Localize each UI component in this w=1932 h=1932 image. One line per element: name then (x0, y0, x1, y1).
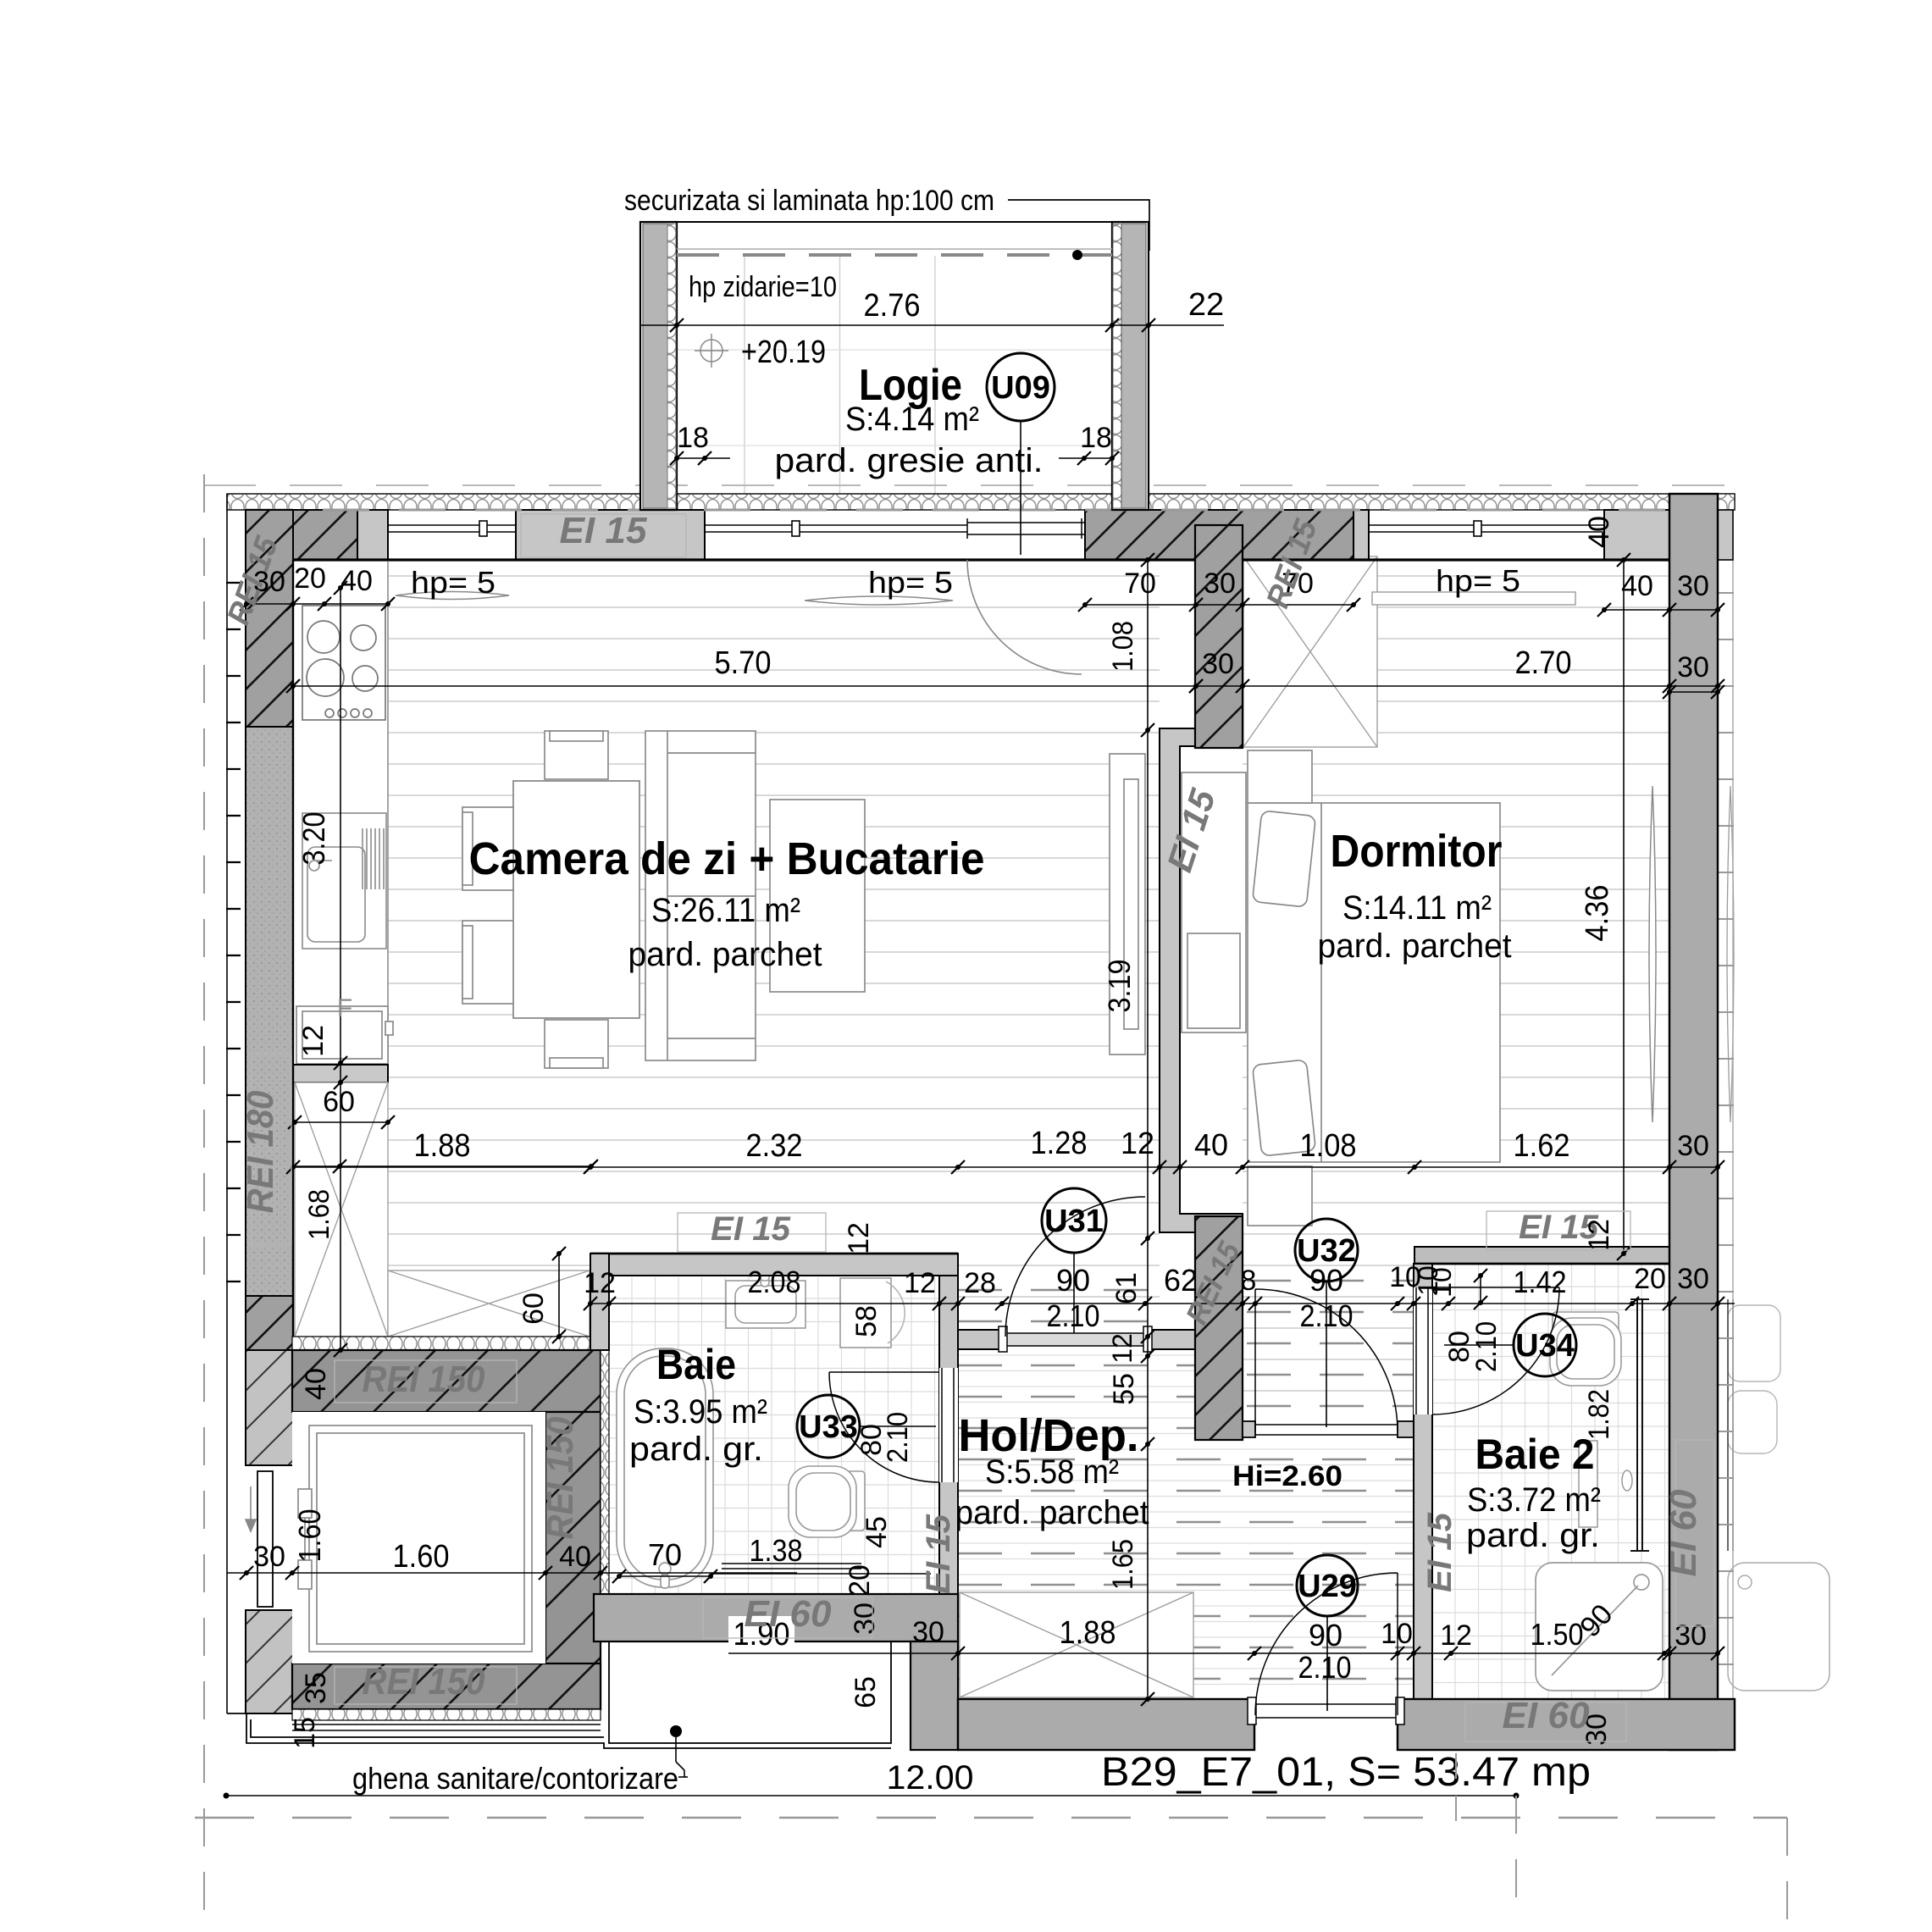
svg-text:12: 12 (843, 1222, 875, 1254)
svg-text:70: 70 (648, 1537, 682, 1572)
svg-text:28: 28 (964, 1267, 996, 1299)
svg-text:securizata si laminata hp:100: securizata si laminata hp:100 cm (624, 185, 994, 217)
svg-text:60: 60 (323, 1086, 355, 1118)
svg-text:12: 12 (1107, 1333, 1138, 1364)
svg-text:hp= 5: hp= 5 (1436, 563, 1520, 598)
svg-text:1.60: 1.60 (292, 1509, 327, 1563)
svg-text:REI 150: REI 150 (363, 1661, 485, 1702)
svg-text:30: 30 (1202, 648, 1234, 680)
svg-text:35: 35 (300, 1672, 332, 1704)
svg-text:pard. parchet: pard. parchet (955, 1494, 1149, 1531)
svg-text:pard. gr.: pard. gr. (1466, 1517, 1600, 1554)
svg-text:12: 12 (584, 1267, 616, 1299)
svg-text:B29_E7_01, S= 53.47 mp: B29_E7_01, S= 53.47 mp (1101, 1750, 1591, 1795)
svg-text:40: 40 (1621, 570, 1653, 602)
svg-text:30: 30 (912, 1616, 944, 1648)
svg-text:EI 60: EI 60 (1663, 1489, 1704, 1577)
svg-text:pard. parchet: pard. parchet (628, 936, 822, 973)
svg-text:10: 10 (1381, 1618, 1413, 1650)
svg-text:U34: U34 (1515, 1328, 1575, 1364)
svg-text:58: 58 (850, 1305, 883, 1337)
svg-text:1.88: 1.88 (414, 1128, 471, 1164)
svg-text:S:26.11 m²: S:26.11 m² (651, 892, 800, 929)
svg-text:90: 90 (1309, 1618, 1342, 1652)
svg-text:60: 60 (518, 1293, 550, 1325)
svg-text:90: 90 (1056, 1263, 1090, 1298)
svg-text:20: 20 (844, 1564, 876, 1597)
svg-text:2.32: 2.32 (746, 1128, 803, 1164)
svg-text:ghena sanitare/contorizare: ghena sanitare/contorizare (352, 1761, 678, 1796)
svg-text:REI 180: REI 180 (240, 1090, 281, 1213)
svg-text:U32: U32 (1297, 1233, 1356, 1269)
svg-text:10: 10 (1426, 1267, 1457, 1298)
svg-text:2.08: 2.08 (748, 1265, 801, 1299)
svg-text:55: 55 (1108, 1373, 1140, 1405)
svg-text:5.70: 5.70 (715, 645, 772, 681)
svg-text:30: 30 (1677, 1130, 1709, 1162)
svg-text:12: 12 (904, 1267, 936, 1299)
svg-text:2.10: 2.10 (1298, 1650, 1352, 1685)
svg-text:1.88: 1.88 (1060, 1615, 1116, 1651)
svg-text:4.36: 4.36 (1580, 885, 1615, 942)
svg-text:30: 30 (1677, 1263, 1709, 1295)
svg-text:U33: U33 (799, 1409, 858, 1445)
svg-text:S:5.58 m²: S:5.58 m² (985, 1453, 1119, 1491)
svg-text:40: 40 (1194, 1127, 1228, 1162)
svg-text:40: 40 (340, 565, 373, 597)
svg-text:65: 65 (850, 1676, 882, 1708)
svg-text:S:3.95 m²: S:3.95 m² (634, 1393, 767, 1431)
svg-text:8: 8 (1241, 1265, 1257, 1297)
svg-text:EI 15: EI 15 (711, 1210, 791, 1248)
svg-text:1.42: 1.42 (1514, 1265, 1567, 1299)
svg-text:S:3.72 m²: S:3.72 m² (1467, 1481, 1601, 1519)
svg-text:40: 40 (1583, 516, 1615, 548)
svg-text:15: 15 (289, 1717, 321, 1749)
svg-text:1.65: 1.65 (1107, 1539, 1139, 1590)
svg-text:EI 15: EI 15 (560, 510, 648, 551)
svg-text:3.19: 3.19 (1102, 960, 1137, 1013)
svg-text:2.70: 2.70 (1515, 645, 1572, 681)
svg-text:1.08: 1.08 (1107, 621, 1139, 672)
svg-text:30: 30 (1675, 1619, 1707, 1652)
svg-text:pard. parchet: pard. parchet (1318, 927, 1512, 965)
svg-text:REI 150: REI 150 (363, 1359, 485, 1400)
svg-text:Baie: Baie (656, 1341, 736, 1388)
svg-text:12.00: 12.00 (887, 1759, 974, 1796)
svg-text:pard. gr.: pard. gr. (629, 1431, 763, 1468)
svg-text:3.20: 3.20 (296, 812, 331, 866)
svg-text:F: F (337, 994, 352, 1022)
svg-text:70: 70 (1124, 567, 1156, 600)
svg-text:Camera de zi + Bucatarie: Camera de zi + Bucatarie (469, 833, 985, 884)
svg-text:20: 20 (1634, 1263, 1666, 1295)
svg-text:2.10: 2.10 (1470, 1321, 1503, 1372)
svg-text:S:14.11 m²: S:14.11 m² (1342, 889, 1492, 927)
svg-text:EI 15: EI 15 (1421, 1512, 1459, 1592)
svg-text:EI 60: EI 60 (745, 1593, 833, 1635)
svg-text:1.08: 1.08 (1300, 1128, 1357, 1164)
svg-text:Baie 2: Baie 2 (1475, 1431, 1595, 1478)
svg-text:EI 15: EI 15 (920, 1514, 957, 1594)
svg-text:40: 40 (559, 1541, 591, 1573)
svg-text:+20.19: +20.19 (741, 335, 826, 370)
svg-text:U09: U09 (991, 370, 1050, 406)
svg-text:hp= 5: hp= 5 (411, 565, 495, 600)
svg-text:18: 18 (1080, 422, 1112, 454)
svg-text:61: 61 (1110, 1272, 1143, 1304)
svg-text:30: 30 (253, 1541, 285, 1573)
svg-text:20: 20 (294, 562, 326, 595)
svg-text:1.60: 1.60 (393, 1539, 450, 1575)
svg-text:hp zidarie=10: hp zidarie=10 (689, 271, 837, 303)
svg-text:12: 12 (297, 1025, 329, 1057)
svg-text:1.68: 1.68 (303, 1189, 335, 1240)
svg-text:pard. gresie anti.: pard. gresie anti. (775, 442, 1044, 479)
svg-text:18: 18 (677, 422, 709, 454)
svg-text:12: 12 (1583, 1219, 1615, 1251)
svg-text:2.10: 2.10 (1047, 1298, 1100, 1333)
svg-text:40: 40 (300, 1368, 332, 1400)
svg-text:U31: U31 (1044, 1204, 1104, 1239)
svg-text:30: 30 (849, 1603, 881, 1635)
svg-text:22: 22 (1188, 287, 1224, 323)
svg-text:1.38: 1.38 (750, 1533, 803, 1568)
svg-text:12: 12 (1121, 1126, 1154, 1160)
svg-text:U29: U29 (1298, 1569, 1357, 1604)
svg-text:30: 30 (1204, 567, 1236, 600)
svg-text:Dormitor: Dormitor (1331, 826, 1503, 877)
svg-text:45: 45 (861, 1516, 893, 1548)
svg-text:hp= 5: hp= 5 (868, 565, 953, 600)
svg-text:1.28: 1.28 (1031, 1126, 1088, 1161)
svg-text:S:4.14 m²: S:4.14 m² (845, 401, 979, 438)
svg-text:30: 30 (1677, 651, 1709, 684)
svg-text:1.62: 1.62 (1514, 1128, 1570, 1164)
svg-text:REI 150: REI 150 (540, 1416, 581, 1539)
svg-text:EI 60: EI 60 (1503, 1695, 1591, 1736)
svg-text:2.10: 2.10 (882, 1412, 914, 1463)
svg-text:12: 12 (1440, 1619, 1472, 1652)
svg-text:2.76: 2.76 (864, 288, 921, 324)
svg-text:30: 30 (1677, 570, 1709, 602)
svg-text:Hi=2.60: Hi=2.60 (1232, 1460, 1342, 1492)
